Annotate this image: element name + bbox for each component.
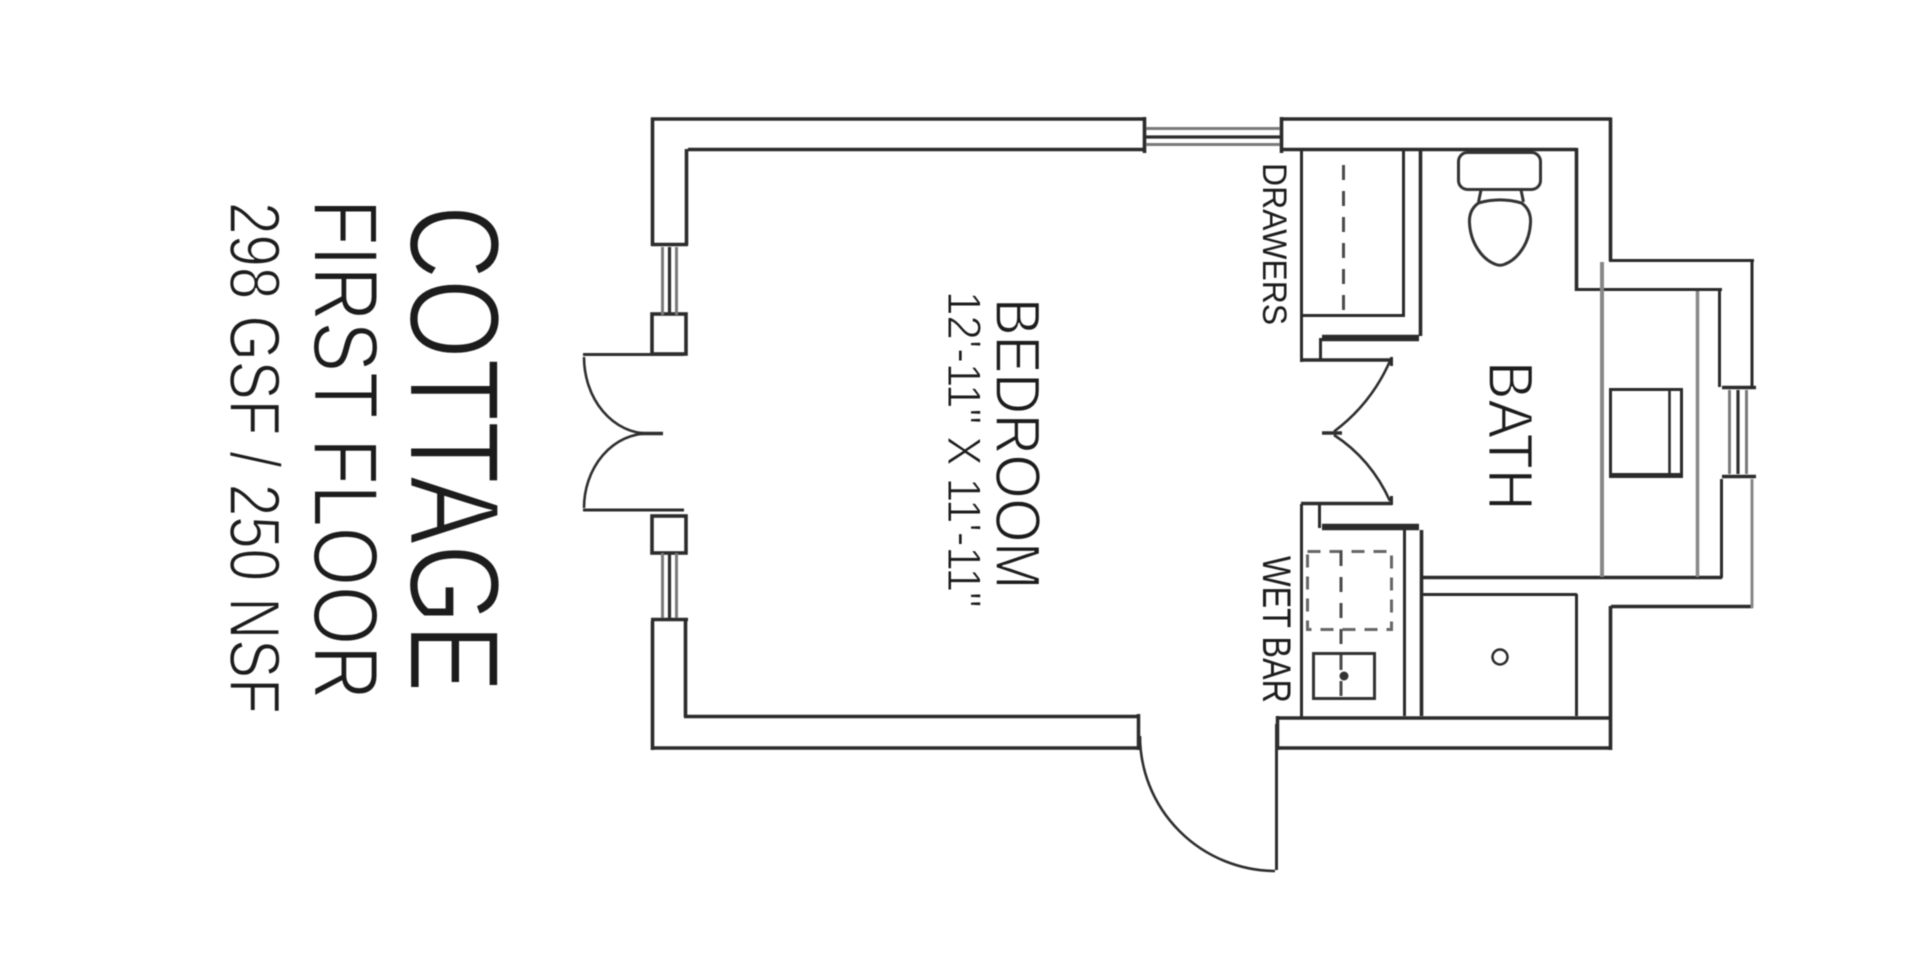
svg-text:COTTAGE: COTTAGE (382, 205, 526, 692)
svg-text:12'-11" X 11'-11": 12'-11" X 11'-11" (938, 291, 991, 608)
svg-text:298 GSF / 250 NSF: 298 GSF / 250 NSF (215, 202, 295, 714)
svg-text:DRAWERS: DRAWERS (1256, 163, 1294, 325)
svg-text:BATH: BATH (1475, 361, 1546, 510)
svg-text:WET BAR: WET BAR (1254, 556, 1299, 703)
svg-text:BEDROOM: BEDROOM (982, 298, 1053, 589)
svg-text:FIRST FLOOR: FIRST FLOOR (294, 199, 396, 700)
